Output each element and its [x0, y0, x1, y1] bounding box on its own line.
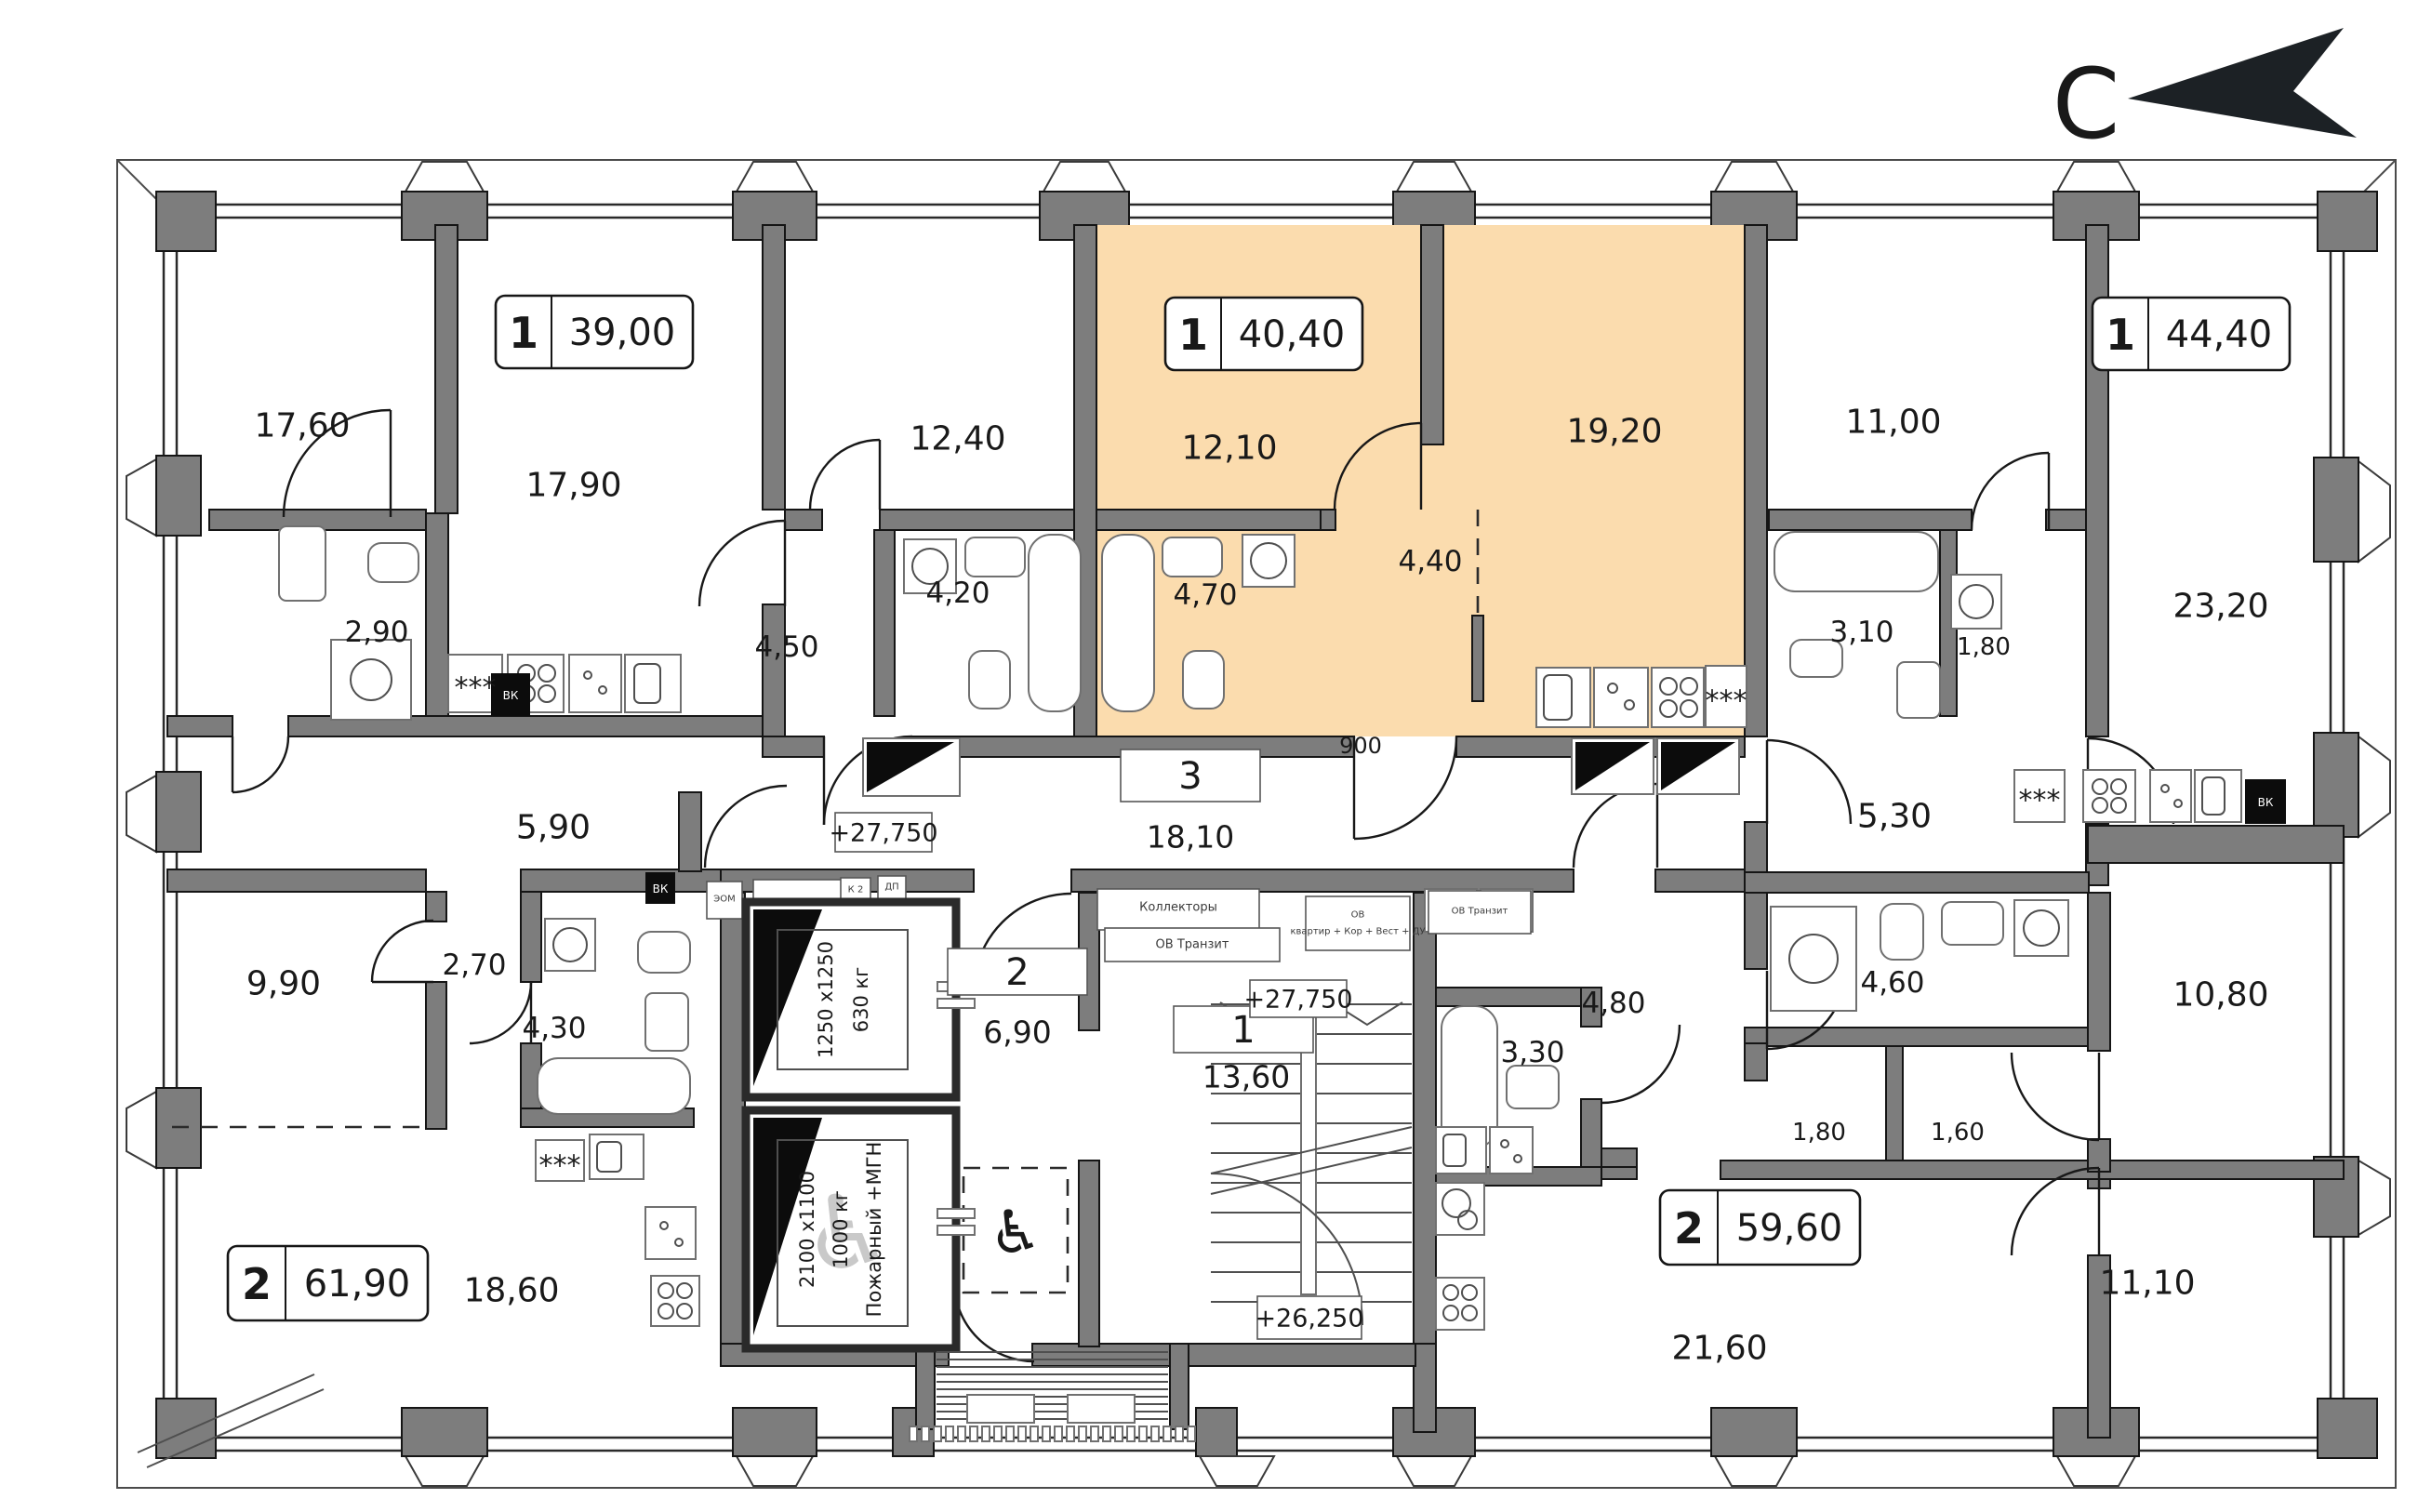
shaft-label-vk: ВК: [2258, 796, 2274, 809]
wheelchair-icon: ♿: [989, 1199, 1042, 1267]
room-area-label: 11,00: [1845, 404, 1941, 442]
tech-label-ov-apts: квартир + Кор + Вест + ДУ: [1290, 927, 1425, 937]
svg-text:2: 2: [242, 1259, 272, 1309]
elevator-passenger-size: 1250 х1250: [815, 941, 837, 1058]
svg-text:18,10: 18,10: [1147, 819, 1234, 855]
room-area-label: 1,60: [1931, 1119, 1985, 1147]
room-area-label: 4,40: [1398, 545, 1462, 578]
apartment-badge-40-40: 1 40,40: [1165, 298, 1362, 370]
room-area-label: 1,80: [1957, 633, 2011, 661]
tech-label-ov: ОВ: [1351, 910, 1365, 921]
fridge-icon: ***: [539, 1150, 581, 1183]
room-area-label: 3,10: [1829, 616, 1893, 649]
apartment-badge-44-40: 1 44,40: [2092, 298, 2290, 370]
tech-label-k2: К 2: [848, 885, 864, 895]
svg-text:6,90: 6,90: [983, 1015, 1051, 1051]
svg-text:1: 1: [2106, 310, 2135, 360]
elevator-fire-size: 2100 х1100: [796, 1171, 818, 1288]
compass: С: [2053, 28, 2357, 161]
tech-label-collectors: Коллекторы: [1139, 901, 1217, 915]
room-area-label: 19,20: [1566, 413, 1662, 451]
tech-label-eom: ЭОМ: [713, 895, 735, 905]
room-area-label: 11,10: [2099, 1265, 2195, 1303]
room-area-label: 18,60: [463, 1272, 559, 1310]
fridge-icon: ***: [455, 672, 497, 705]
north-label: С: [2053, 47, 2120, 161]
tech-label-dp: ДП: [884, 882, 898, 893]
room-area-label: 9,90: [246, 965, 321, 1003]
room-area-label: 17,90: [525, 467, 621, 505]
room-area-label: 12,10: [1181, 430, 1277, 468]
svg-text:2: 2: [1005, 951, 1029, 994]
room-area-label: 4,70: [1173, 578, 1237, 612]
door-width-dimension: 900: [1339, 733, 1382, 759]
elevation-label: +27,750: [829, 819, 937, 848]
room-area-label: 21,60: [1671, 1330, 1767, 1368]
room-area-label: 23,20: [2172, 588, 2268, 626]
svg-text:2: 2: [1674, 1203, 1704, 1253]
room-area-label: 2,70: [442, 948, 506, 982]
elevators: 1250 х1250 630 кг ♿ 2100 х1100 1000 кг П…: [746, 902, 975, 1348]
room-area-label: 5,90: [516, 809, 591, 847]
apartment-badge-39-00: 1 39,00: [496, 296, 693, 368]
elevation-label: +27,750: [1243, 986, 1352, 1015]
svg-text:61,90: 61,90: [304, 1263, 411, 1306]
room-area-label: 10,80: [2172, 976, 2268, 1015]
elevation-label: +26,250: [1255, 1305, 1363, 1333]
room-area-label: 3,30: [1500, 1036, 1564, 1069]
elevator-fire-capacity: 1000 кг: [830, 1190, 852, 1268]
room-area-label: 4,50: [754, 630, 818, 664]
apartment-badge-59-60: 2 59,60: [1660, 1190, 1860, 1265]
shaft-label-vk: ВК: [653, 882, 669, 895]
room-area-label: 12,40: [910, 420, 1005, 458]
svg-text:1: 1: [1178, 310, 1208, 360]
room-area-label: 4,30: [522, 1012, 586, 1045]
room-area-label: 2,90: [344, 616, 408, 649]
room-area-label: 4,60: [1860, 966, 1924, 1000]
svg-text:44,40: 44,40: [2166, 313, 2273, 356]
elevator-passenger-capacity: 630 кг: [850, 967, 872, 1032]
floor-plan: ВК ВК ВК Коллекторы ОВ Транзит ОВ кварти…: [0, 0, 2418, 1507]
tech-label-ov-transit-2: ОВ Транзит: [1452, 907, 1508, 917]
svg-text:1: 1: [509, 308, 538, 358]
room-area-label: 1,80: [1792, 1119, 1846, 1147]
svg-text:3: 3: [1178, 755, 1202, 798]
corridor-badge: 3 18,10: [1121, 749, 1260, 855]
elevator-fire-note: Пожарный +МГН: [863, 1142, 885, 1318]
apartment-badge-61-90: 2 61,90: [228, 1246, 428, 1320]
tech-label-ov-transit: ОВ Транзит: [1156, 938, 1229, 952]
room-area-label: 4,80: [1581, 987, 1645, 1020]
room-area-label: 4,20: [925, 577, 990, 610]
svg-text:39,00: 39,00: [569, 312, 676, 354]
svg-text:59,60: 59,60: [1736, 1207, 1843, 1250]
room-area-label: 5,30: [1857, 798, 1932, 836]
svg-text:40,40: 40,40: [1239, 313, 1346, 356]
room-area-label: 17,60: [254, 407, 350, 445]
stair-hall-badge: 1 13,60: [1174, 1006, 1313, 1095]
svg-text:13,60: 13,60: [1202, 1059, 1290, 1095]
north-arrow-icon: [2128, 28, 2357, 138]
fridge-icon: ***: [2019, 785, 2061, 817]
shaft-label-vk: ВК: [503, 689, 519, 702]
fridge-icon: ***: [1706, 685, 1747, 718]
